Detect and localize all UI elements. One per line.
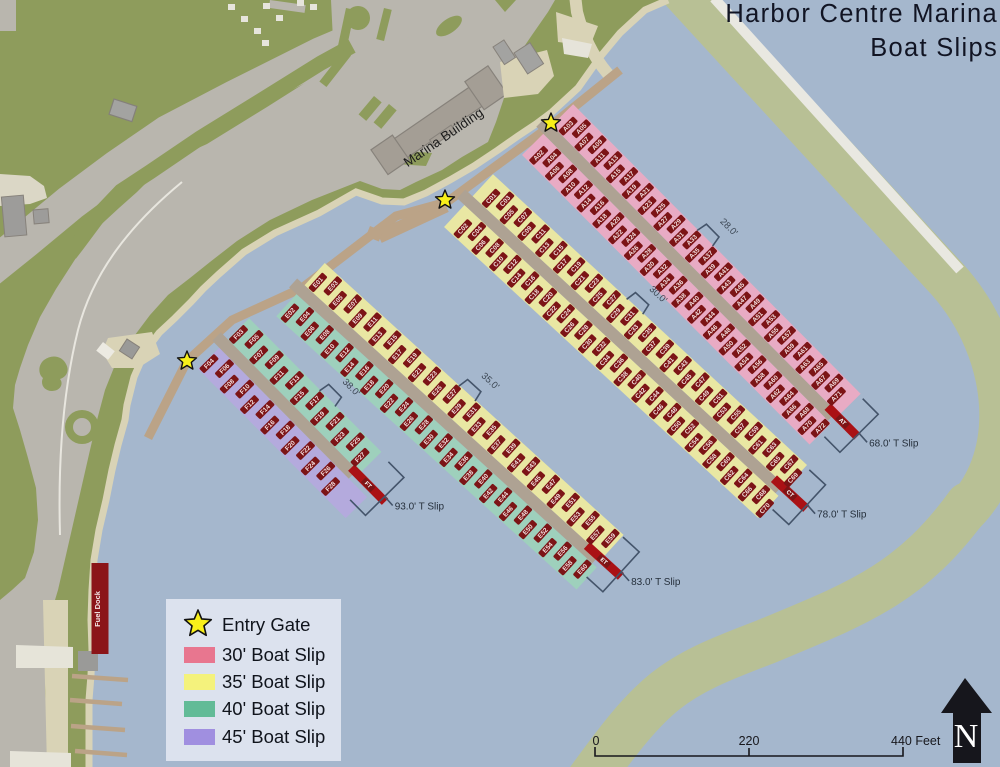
svg-text:440 Feet: 440 Feet [891, 734, 941, 748]
svg-text:30' Boat Slip: 30' Boat Slip [222, 644, 325, 665]
svg-text:Fuel Dock: Fuel Dock [93, 590, 102, 627]
svg-text:35' Boat Slip: 35' Boat Slip [222, 671, 325, 692]
svg-text:220: 220 [739, 734, 760, 748]
svg-text:93.0' T Slip: 93.0' T Slip [395, 502, 445, 513]
svg-text:40' Boat Slip: 40' Boat Slip [222, 698, 325, 719]
svg-text:78.0' T Slip: 78.0' T Slip [817, 510, 867, 521]
svg-text:N: N [954, 718, 979, 755]
svg-text:Boat Slips: Boat Slips [870, 34, 998, 62]
svg-text:83.0' T Slip: 83.0' T Slip [631, 577, 681, 588]
svg-text:68.0' T Slip: 68.0' T Slip [869, 438, 919, 449]
svg-text:0: 0 [593, 734, 600, 748]
svg-text:Harbor Centre Marina: Harbor Centre Marina [725, 0, 998, 28]
svg-text:45' Boat Slip: 45' Boat Slip [222, 726, 325, 747]
svg-text:Entry Gate: Entry Gate [222, 614, 310, 635]
